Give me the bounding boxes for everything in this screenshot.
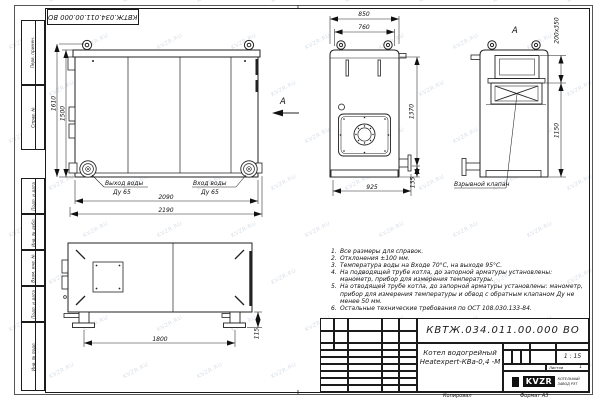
dim-front-height: 1370: [409, 100, 416, 124]
dim-side-width-inner: 2090: [151, 194, 181, 201]
drawing-sheet: KVZR.RUKVZR.RUKVZR.RUKVZR.RUKVZR.RUKVZR.…: [0, 0, 600, 400]
note-item: 6.Остальные технические требования по ОС…: [331, 305, 585, 312]
view-arrow-label: А: [280, 97, 286, 107]
technical-notes: 1.Все размеры для справок. 2.Отклонения …: [331, 248, 585, 312]
format-label: Формат А3: [520, 393, 548, 399]
row-n-kontr: Н. контр.: [320, 378, 348, 385]
dim-front-bottom: 925: [357, 184, 387, 191]
label-water-outlet: Выход воды: [105, 180, 143, 187]
rear-view-label: А: [512, 26, 518, 36]
title-block: Изм. Лист № докум. Подп. Дата Разраб. Пр…: [320, 318, 589, 392]
dim-plan-foot: 115: [254, 323, 261, 345]
note-item: 1.Все размеры для справок.: [331, 248, 585, 255]
dim-side-height-outer: 1610: [51, 92, 58, 116]
row-utv: Утв.: [320, 385, 348, 392]
note-item: 4.На подводящей трубе котла, до запорной…: [331, 269, 585, 283]
label-explosion-valve: Взрывной клапан: [454, 181, 509, 188]
dim-rear-vent: 200х350: [554, 17, 561, 45]
logo-kvzr: KVZR: [523, 376, 554, 387]
listov-cell: Листов 1: [546, 364, 589, 371]
row-nach-otd: Нач.отд.: [320, 371, 348, 378]
label-water-inlet: Вход воды: [193, 180, 227, 187]
note-item: 2.Отклонения ±100 мм.: [331, 255, 585, 262]
massa-value: [530, 350, 556, 365]
row-razrab: Разраб.: [320, 350, 348, 357]
row-t-kontr: Т. контр.: [320, 364, 348, 371]
note-item: 5.На отводящей трубе котла, до запорной …: [331, 283, 585, 304]
scale-value: 1 : 15: [556, 350, 589, 365]
logo-square: [512, 377, 519, 387]
dim-plan-length: 1800: [145, 336, 175, 343]
dim-front-width-inner: 760: [349, 24, 379, 31]
dim-rear-height: 1150: [554, 119, 561, 143]
label-water-inlet-dn: Ду 65: [201, 189, 219, 196]
note-item: 3.Температура воды на Входе 70°С, на вых…: [331, 262, 585, 269]
dim-front-width-outer: 850: [349, 11, 379, 18]
company-logo-cell: KVZR КОТЕЛЬНЫЙ ЗАВОД РЭТ: [503, 371, 589, 392]
dim-front-conn: 135: [410, 171, 417, 195]
kopiroval-label: Копировал: [443, 393, 472, 399]
company-name: КОТЕЛЬНЫЙ ЗАВОД РЭТ: [558, 377, 580, 385]
list-cell: Лист: [503, 364, 546, 371]
dim-side-height-inner: 1500: [60, 102, 67, 126]
dim-side-width-outer: 2190: [151, 207, 181, 214]
doc-number: КВТЖ.034.011.00.000 ВО: [417, 318, 589, 343]
product-name: Котел водогрейный Heatexpert-КВа-0,4 -М: [417, 343, 503, 392]
row-prov: Пров.: [320, 357, 348, 364]
label-water-outlet-dn: Ду 65: [113, 189, 131, 196]
